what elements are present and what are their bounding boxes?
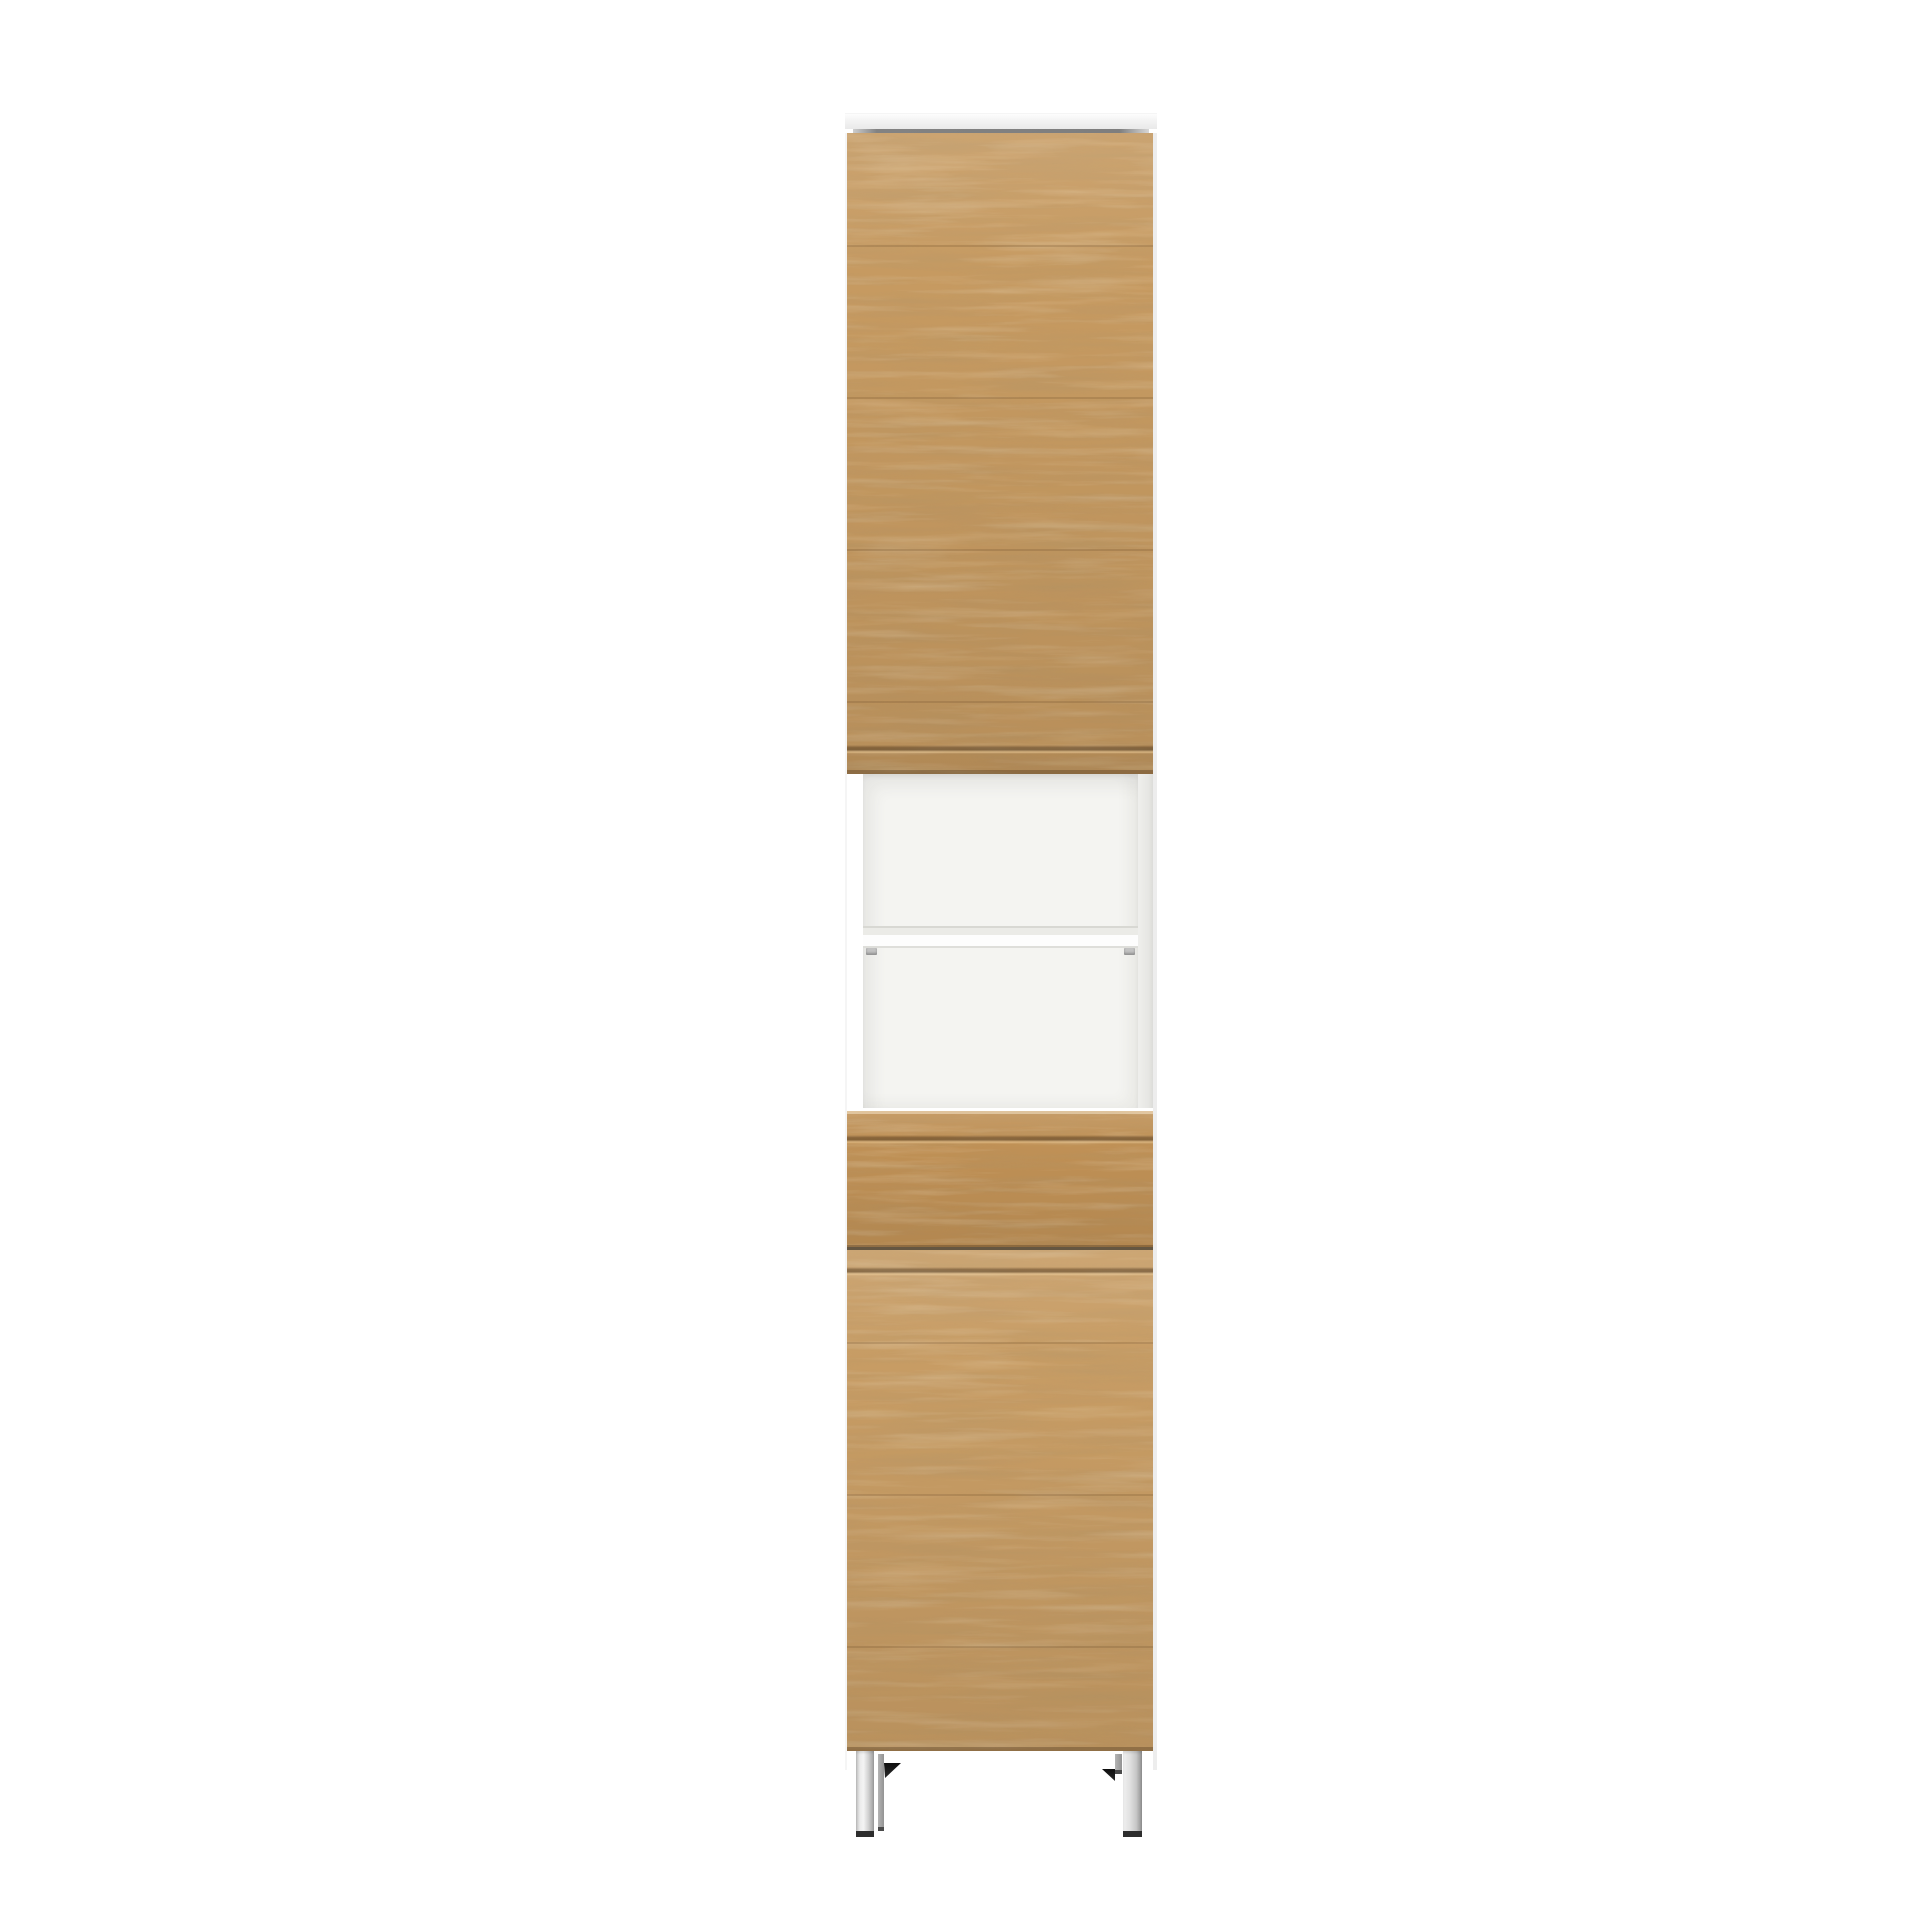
drawer-grip-groove [847,1135,1153,1144]
shelf-pin-right [1124,948,1135,955]
drawer-front [847,1111,1153,1247]
shelf-pin-left [866,948,877,955]
front-leg-right [1123,1751,1142,1837]
lower-door [847,1250,1153,1751]
leg-foot-right [1123,1831,1142,1837]
lower-door-grip-groove [847,1267,1153,1276]
product-photo [40,16,1920,1920]
back-leg-right [1115,1754,1122,1774]
floor-shadow-wedge-left [884,1763,901,1778]
open-shelf-niche [847,774,1153,1111]
drawer-plank-shading [847,1111,1153,1247]
carcass-right-edge [1153,133,1157,1770]
upper-door-plank-shading [847,133,1153,774]
floor-shadow-wedge-right [1102,1769,1115,1781]
back-leg-left [878,1754,884,1831]
upper-door [847,133,1153,774]
lower-door-plank-shading [847,1250,1153,1751]
cabinet-top-panel [845,114,1157,129]
niche-right-side-panel [1138,774,1153,1108]
middle-shelf [863,926,1138,948]
leg-foot-left [856,1831,874,1837]
lower-door-bottom-edge [847,1747,1153,1751]
niche-interior [863,774,1138,1108]
cabinet [845,114,1157,1837]
front-leg-left [856,1751,874,1837]
drawer-top-highlight [847,1111,1153,1114]
